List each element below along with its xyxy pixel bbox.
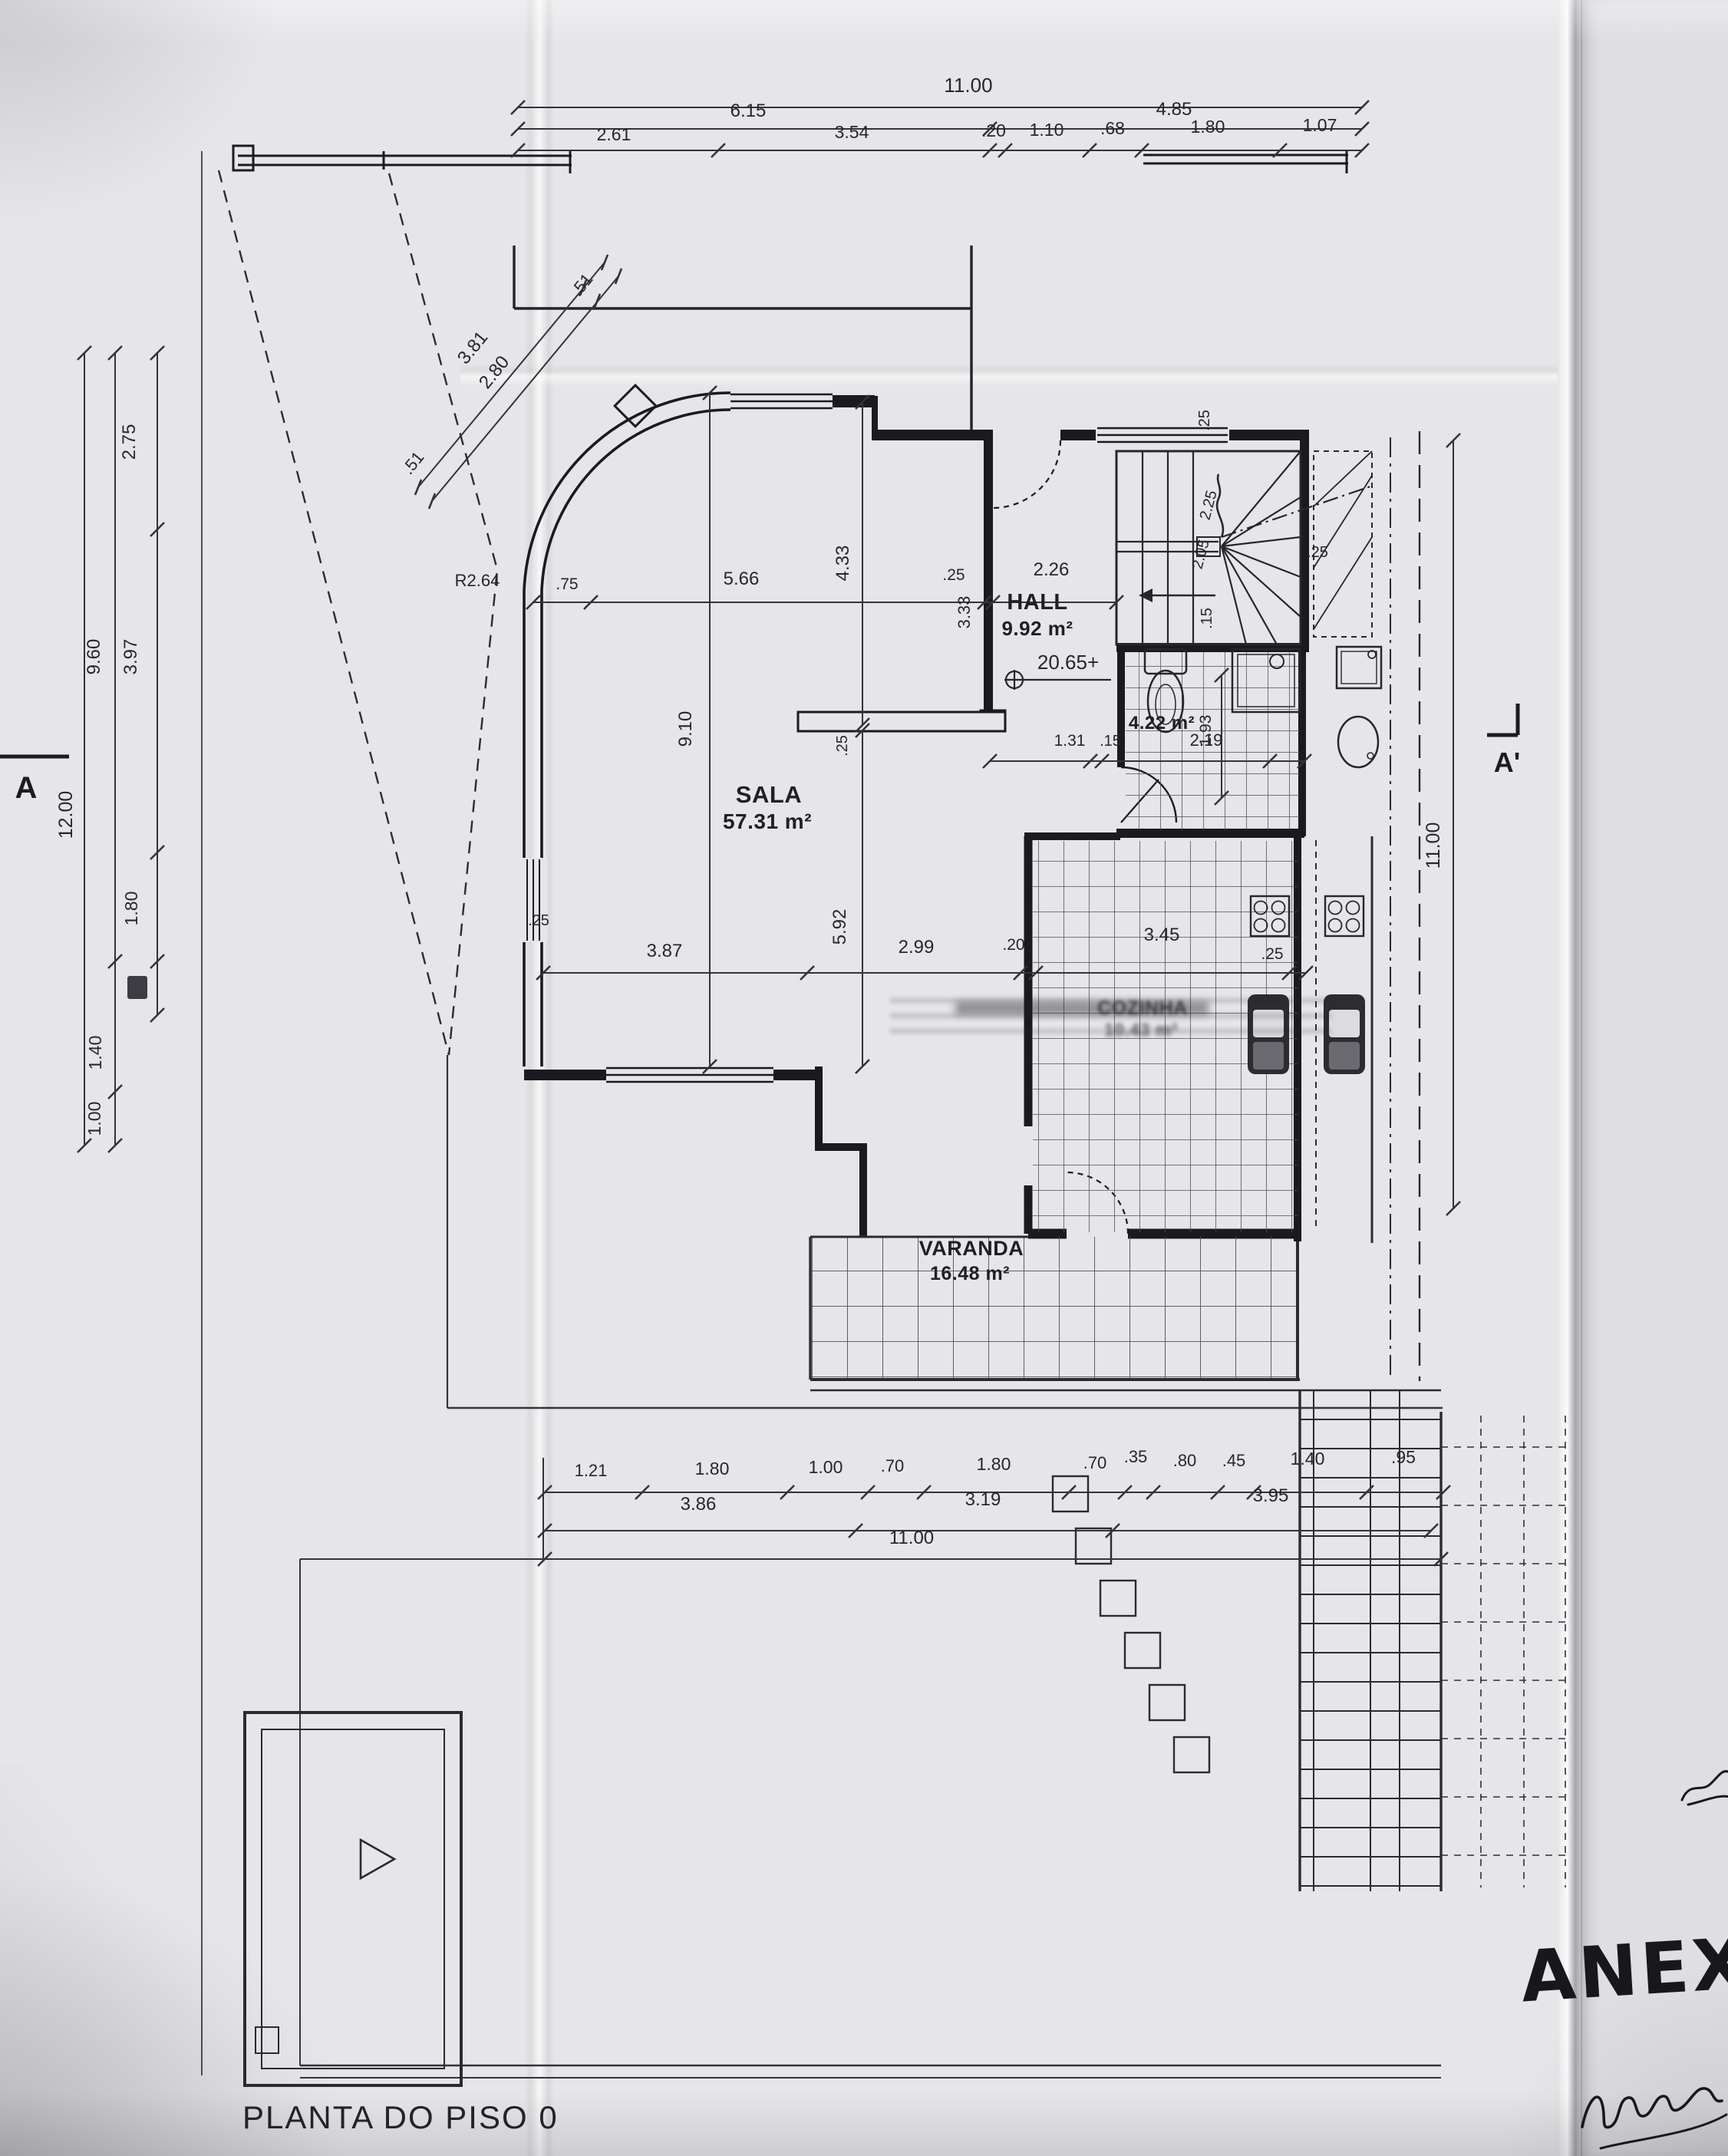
dimension-label: 1.80 (695, 1459, 730, 1479)
dimension-label: .70 (881, 1456, 905, 1475)
dimension-label: .25 (1307, 544, 1328, 561)
dimension-label: 2.75 (119, 424, 140, 460)
dimension-label: 1.80 (1191, 117, 1225, 137)
dimension-label: 9.60 (84, 639, 104, 675)
stair-up-arrow (1139, 588, 1215, 602)
exterior-sink (1324, 994, 1365, 1074)
section-marker-right (1487, 704, 1518, 735)
dimension-label: .25 (1261, 945, 1283, 963)
room-area-label: 4.22 m² (1129, 713, 1195, 734)
dimension-label: 2.61 (597, 124, 632, 144)
section-label-a-prime: A' (1494, 747, 1521, 778)
dimension-label: 1.07 (1303, 115, 1337, 135)
stepping-stones (1053, 1476, 1209, 1772)
dimension-label: 6.15 (730, 101, 767, 121)
dimension-label: R2.64 (455, 571, 500, 590)
dimension-label: 1.31 (1054, 732, 1086, 750)
dimension-label: .25 (528, 912, 549, 929)
dimension-label: 4.85 (1156, 99, 1192, 120)
dimension-label: 1.80 (977, 1454, 1011, 1474)
ink-smudge (127, 976, 147, 999)
dimension-label: 1.10 (1030, 120, 1064, 140)
room-area-label: 57.31 m² (723, 809, 812, 833)
exterior-cooktop (1325, 896, 1364, 936)
dimension-label: 9.10 (675, 711, 696, 747)
room-name-label: COZINHA (1097, 997, 1187, 1019)
kitchen-sink (1248, 994, 1289, 1074)
dimension-label: 1.40 (85, 1036, 105, 1070)
dimension-label: 20.65+ (1037, 651, 1099, 674)
dimension-label: 11.00 (889, 1528, 934, 1548)
exterior-service-area (1314, 451, 1381, 767)
laundry-tub (1337, 647, 1381, 688)
roof-overhang-dashed-grid (1441, 1416, 1565, 1887)
room-area-label: 16.48 m² (930, 1263, 1010, 1284)
room-name-label: VARANDA (919, 1237, 1024, 1260)
dimension-label: .20 (1002, 936, 1024, 954)
dimension-label: .80 (1173, 1451, 1197, 1470)
roof-projection-dashed-lines (219, 170, 497, 1055)
dimension-label: 2.80 (475, 352, 513, 393)
gate-direction-triangle (361, 1840, 394, 1878)
dimension-label: .45 (1222, 1451, 1246, 1470)
section-label-a: A (15, 771, 38, 805)
dimension-label: 2.25 (1197, 489, 1221, 522)
dimension-label: 5.66 (724, 569, 760, 589)
signature-underline (1601, 2115, 1726, 2148)
stair-direction-squiggle (1217, 474, 1223, 537)
dimension-label: .95 (1391, 1447, 1416, 1467)
staircase (1116, 451, 1370, 644)
garage-outline (245, 1713, 461, 2085)
dimension-label: 3.87 (647, 941, 683, 961)
scribble-top-right (1682, 1772, 1728, 1805)
signature-scribble (1582, 2088, 1722, 2128)
dimension-label: 2.99 (899, 937, 935, 958)
dimension-label: 3.86 (681, 1494, 717, 1515)
dimension-label: 1.00 (84, 1102, 104, 1136)
dimension-label: .70 (1083, 1453, 1107, 1472)
dimension-label: .20 (981, 120, 1006, 140)
dimension-label: .25 (1196, 410, 1213, 431)
room-name-label: SALA (736, 781, 802, 808)
section-trace-line (1222, 486, 1370, 537)
drawing-caption: PLANTA DO PISO 0 (242, 2099, 559, 2136)
dimension-label: 3.19 (965, 1489, 1001, 1510)
dimension-label: 1.40 (1291, 1449, 1325, 1469)
dimension-label: .15 (1199, 608, 1215, 629)
dimension-label: 1.00 (809, 1457, 843, 1477)
dimension-label: 11.00 (1423, 823, 1444, 869)
dimension-label: 1.80 (121, 892, 141, 926)
dimension-label: .51 (398, 448, 428, 479)
dimension-label: 1.21 (575, 1461, 608, 1480)
handwritten-anexo-note: ANEXO (1519, 1919, 1728, 2019)
floorplan-drawing: A A' 11.006.154.852.613.54.201.10.681.80… (0, 0, 1728, 2156)
dimension-label: .68 (1100, 118, 1125, 138)
dimension-label: 2.26 (1034, 559, 1070, 580)
dimension-label: 3.33 (955, 596, 974, 629)
wash-basin-oval (1338, 717, 1378, 767)
dimension-label: 3.45 (1144, 925, 1180, 945)
scanned-floor-plan-page: A A' 11.006.154.852.613.54.201.10.681.80… (0, 0, 1728, 2156)
dimension-label: 11.00 (944, 74, 992, 97)
room-area-label: 9.92 m² (1001, 617, 1073, 640)
dimension-label: 3.54 (835, 122, 869, 142)
dimension-label: 3.81 (453, 328, 492, 368)
varanda-tiles (810, 1237, 1298, 1380)
dimension-label: 3.97 (120, 639, 141, 675)
room-name-label: HALL (1007, 590, 1067, 615)
dimension-label: .15 (1100, 733, 1121, 750)
dimension-label: .51 (567, 270, 597, 301)
dimension-label: .25 (834, 735, 851, 757)
dimension-label: .75 (556, 575, 578, 593)
dimension-label: 5.92 (829, 909, 850, 945)
dimension-label: 12.00 (55, 791, 77, 839)
dimension-label: .35 (1124, 1447, 1148, 1466)
dimension-label: 4.33 (833, 546, 853, 582)
dimension-label: 3.95 (1253, 1485, 1289, 1506)
room-area-label: 10.43 m² (1104, 1020, 1178, 1040)
dimension-label: .25 (942, 566, 965, 584)
